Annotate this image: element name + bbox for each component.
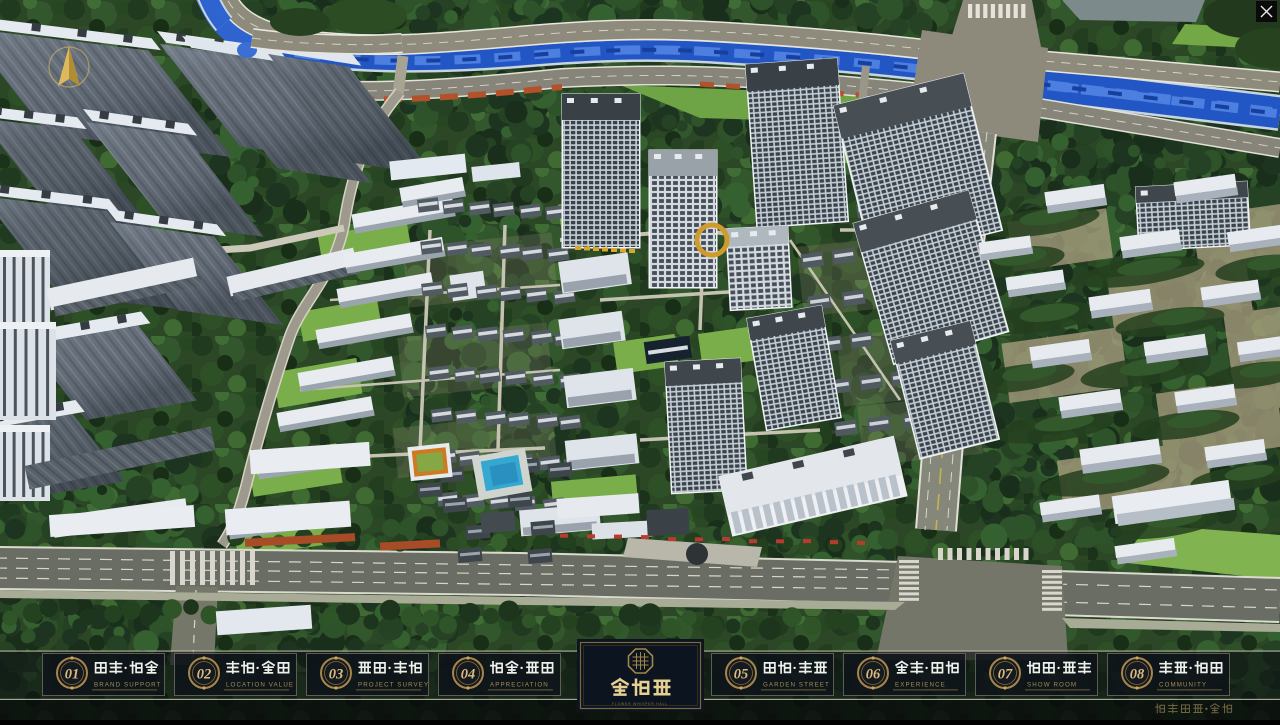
svg-text:LOCATION VALUE: LOCATION VALUE (226, 682, 294, 689)
svg-text:07: 07 (998, 667, 1013, 683)
svg-text:01: 01 (65, 667, 80, 683)
svg-text:05: 05 (734, 667, 749, 683)
svg-text:06: 06 (866, 667, 881, 683)
svg-text:COMMUNITY: COMMUNITY (1159, 682, 1207, 689)
svg-text:04: 04 (461, 667, 476, 683)
svg-text:02: 02 (197, 667, 212, 683)
svg-text:PROJECT SURVEY: PROJECT SURVEY (358, 682, 429, 689)
svg-text:08: 08 (1130, 667, 1145, 683)
svg-text:GARDEN STREET: GARDEN STREET (763, 682, 830, 689)
svg-text:03: 03 (329, 667, 344, 683)
svg-text:SHOW ROOM: SHOW ROOM (1027, 682, 1077, 689)
svg-text:FLOWER WHISPER HALL: FLOWER WHISPER HALL (612, 702, 668, 706)
svg-text:EXPERIENCE: EXPERIENCE (895, 682, 946, 689)
svg-text:BRAND SUPPORT: BRAND SUPPORT (94, 682, 161, 689)
svg-text:APPRECIATION: APPRECIATION (490, 682, 549, 689)
